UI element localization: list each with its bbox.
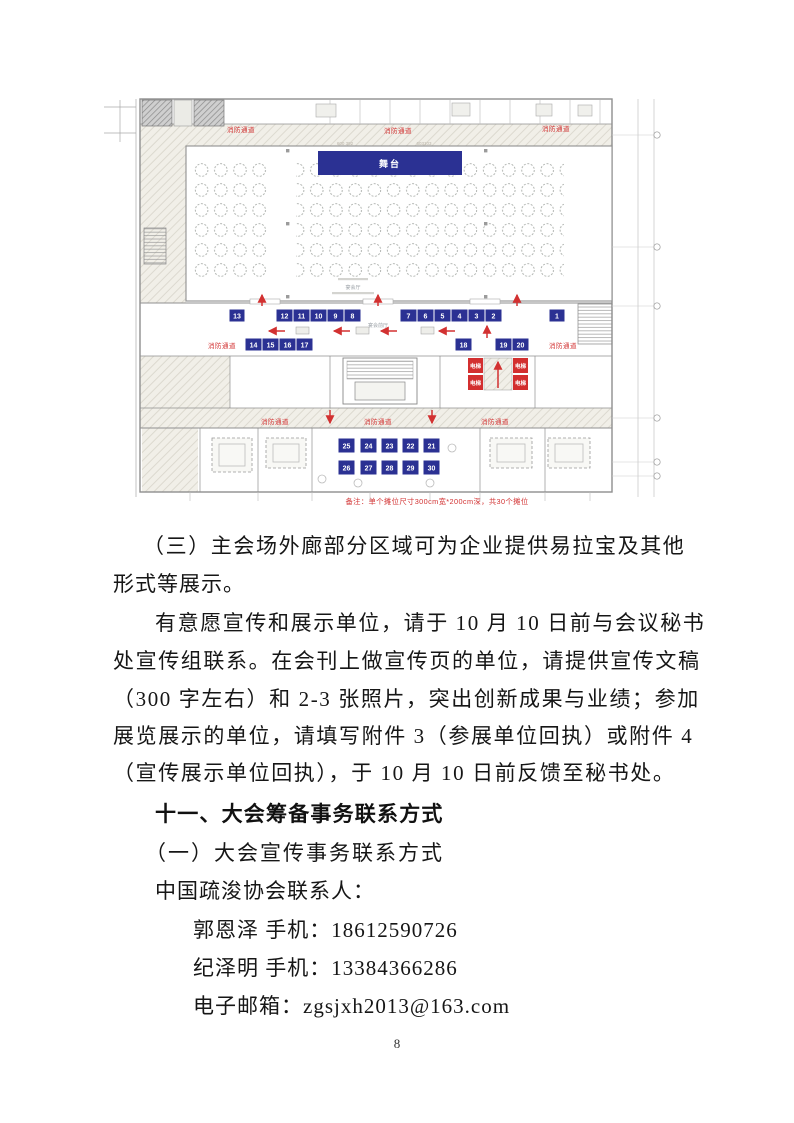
booth-13-label: 13 (233, 314, 241, 321)
booth-12-label: 12 (281, 314, 289, 321)
booth-2-label: 2 (492, 314, 496, 321)
banquet-tables (194, 158, 564, 278)
booth-17-label: 17 (301, 343, 309, 350)
contact-intro: 中国疏浚协会联系人： (155, 875, 375, 905)
top-rooms (142, 100, 600, 126)
elevator-label: 电梯 (515, 379, 527, 387)
booth-6-label: 6 (424, 314, 428, 321)
booth-rows-bottom: 25 24 23 22 21 26 27 28 29 30 (338, 438, 440, 475)
floorplan-figure: 消防通道 消防通道 消防通道 舞台 600 392 603103 宴会厅 (100, 96, 666, 516)
dimension-text: 603103 (416, 141, 432, 146)
contact-line-2: 纪泽明 手机：13384366286 (193, 952, 458, 982)
escalator-block (343, 358, 417, 404)
foyer-label: 宴会前厅 (368, 322, 388, 329)
booth-30-label: 30 (428, 466, 436, 473)
fire-lane-label: 消防通道 (542, 124, 570, 133)
fire-lane-label: 消防通道 (364, 417, 392, 426)
booth-10-label: 10 (315, 314, 323, 321)
booth-3-label: 3 (475, 314, 479, 321)
booth-25-label: 25 (343, 444, 351, 451)
booth-16-label: 16 (284, 343, 292, 350)
fire-lane-label: 消防通道 (549, 341, 577, 350)
fire-lane-label: 消防通道 (208, 341, 236, 350)
para4-line3: （300 字左右）和 2-3 张照片，突出创新成果与业绩；参加 (113, 683, 700, 713)
booth-14-label: 14 (250, 343, 258, 350)
fire-lane-label: 消防通道 (227, 125, 255, 134)
booth-7-label: 7 (407, 314, 411, 321)
elevator-label: 电梯 (515, 362, 527, 370)
booth-15-label: 15 (267, 343, 275, 350)
document-page: 消防通道 消防通道 消防通道 舞台 600 392 603103 宴会厅 (0, 0, 794, 1123)
elevator-label: 电梯 (470, 379, 482, 387)
booth-27-label: 27 (365, 466, 373, 473)
para4-line2: 处宣传组联系。在会刊上做宣传页的单位，请提供宣传文稿 (113, 645, 701, 675)
booth-5-label: 5 (441, 314, 445, 321)
booth-22-label: 22 (407, 444, 415, 451)
para4-line4: 展览展示的单位，请填写附件 3（参展单位回执）或附件 4 (113, 720, 693, 750)
floorplan-svg: 消防通道 消防通道 消防通道 舞台 600 392 603103 宴会厅 (100, 96, 666, 516)
section-heading-11: 十一、大会筹备事务联系方式 (155, 798, 444, 828)
booth-note: 备注：单个摊位尺寸300cm宽*200cm深，共30个摊位 (345, 497, 528, 506)
booth-row-2: 14 15 16 17 18 19 20 (245, 338, 529, 351)
booth-28-label: 28 (386, 466, 394, 473)
elevator-label: 电梯 (470, 362, 482, 370)
page-number: 8 (0, 1036, 794, 1052)
fire-lane-label: 消防通道 (261, 417, 289, 426)
foyer-fixtures (296, 327, 434, 334)
booth-20-label: 20 (517, 343, 525, 350)
booth-18-label: 18 (460, 343, 468, 350)
fire-lane-label: 消防通道 (384, 126, 412, 135)
booth-4-label: 4 (458, 314, 462, 321)
booth-24-label: 24 (365, 444, 373, 451)
sub-heading-1: （一）大会宣传事务联系方式 (145, 837, 444, 867)
dimension-text: 600 392 (337, 141, 354, 146)
para3-line2: 形式等展示。 (113, 568, 245, 598)
booth-8-label: 8 (351, 314, 355, 321)
booth-row-1: 13 12 11 10 9 8 7 6 5 4 3 2 1 (229, 309, 565, 322)
stage-label: 舞台 (379, 158, 401, 169)
contact-line-1: 郭恩泽 手机：18612590726 (193, 914, 458, 944)
para4-line5: （宣传展示单位回执），于 10 月 10 日前反馈至秘书处。 (113, 757, 676, 787)
booth-29-label: 29 (407, 466, 415, 473)
para4-line1: 有意愿宣传和展示单位，请于 10 月 10 日前与会议秘书 (155, 607, 705, 637)
meeting-room-tables (212, 438, 590, 472)
booth-19-label: 19 (500, 343, 508, 350)
fire-lane-label: 消防通道 (481, 417, 509, 426)
booth-1-label: 1 (555, 314, 559, 321)
booth-9-label: 9 (334, 314, 338, 321)
booth-11-label: 11 (298, 314, 306, 321)
booth-26-label: 26 (343, 466, 351, 473)
booth-23-label: 23 (386, 444, 394, 451)
hall-label: 宴会厅 (345, 284, 360, 291)
booth-21-label: 21 (428, 444, 436, 451)
contact-email: 电子邮箱：zgsjxh2013@163.com (193, 990, 510, 1020)
para3-line1: （三）主会场外廊部分区域可为企业提供易拉宝及其他 (143, 530, 685, 560)
